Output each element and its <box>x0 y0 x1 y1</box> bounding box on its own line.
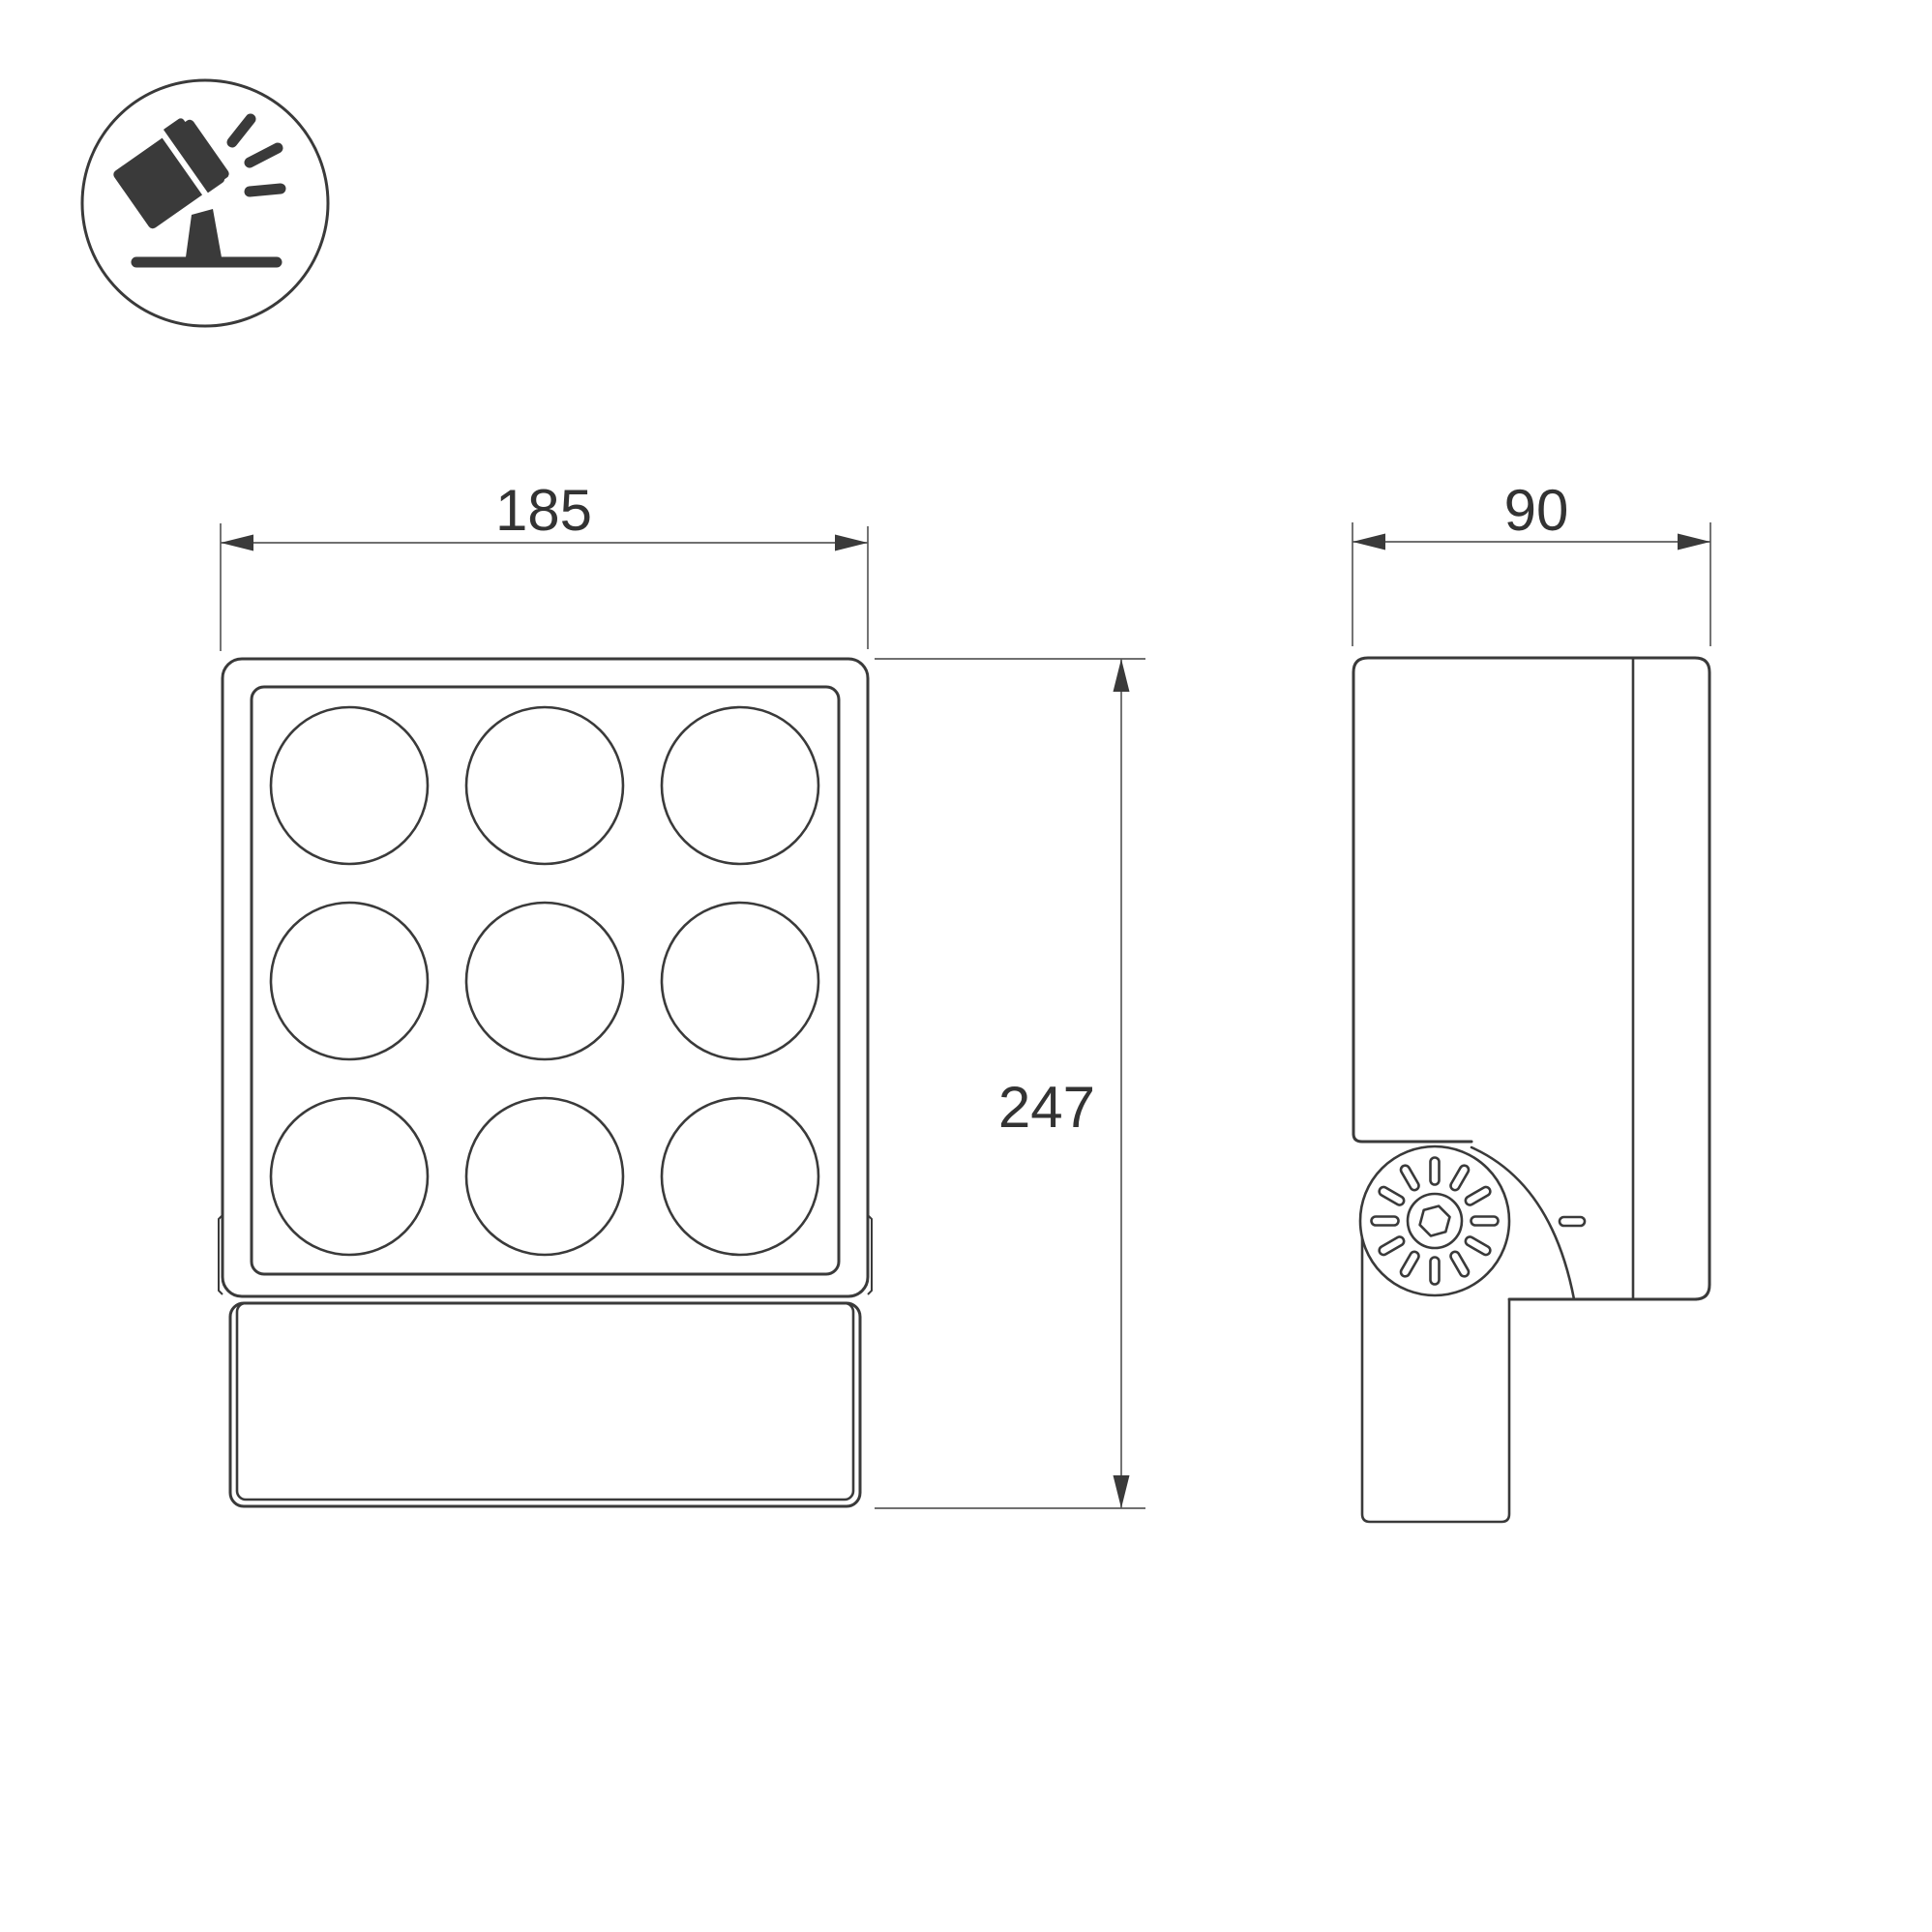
light-ray-2-icon <box>250 148 278 163</box>
lens-circle <box>271 903 428 1059</box>
front-view <box>219 659 872 1506</box>
arrow-right-icon <box>835 535 868 551</box>
arrow-left-icon <box>221 535 253 551</box>
lens-circle <box>662 903 818 1059</box>
floodlight-dimension-drawing: 185 247 <box>0 0 1932 1932</box>
lens-circle <box>662 707 818 864</box>
lens-circle <box>271 707 428 864</box>
lens-circle <box>662 1098 818 1255</box>
side-depth-dimension: 90 <box>1352 478 1710 646</box>
technical-drawing-page: 185 247 <box>0 0 1932 1932</box>
side-housing-bottom-left <box>1353 1134 1471 1142</box>
arrow-up-icon <box>1114 659 1130 692</box>
lens-circle <box>466 1098 623 1255</box>
side-slot-detail <box>1560 1217 1585 1226</box>
front-housing-outline <box>223 659 868 1296</box>
front-base-outer <box>230 1303 860 1506</box>
spotlight-post <box>186 209 222 257</box>
arrow-right-icon <box>1678 534 1710 550</box>
side-view <box>1353 658 1709 1522</box>
icon-circle-border <box>82 80 328 326</box>
arrow-down-icon <box>1114 1475 1130 1508</box>
spotlight-glyph-icon <box>111 117 281 262</box>
side-depth-label: 90 <box>1504 478 1569 543</box>
front-height-dimension: 247 <box>875 659 1145 1508</box>
light-ray-3-icon <box>250 189 281 192</box>
arrow-left-icon <box>1352 534 1385 550</box>
light-ray-1-icon <box>232 119 251 142</box>
knob-hub <box>1408 1194 1462 1248</box>
floodlight-icon <box>82 80 328 326</box>
lens-grid <box>271 707 818 1255</box>
front-width-dimension: 185 <box>221 478 868 651</box>
front-width-label: 185 <box>495 478 592 543</box>
front-height-label: 247 <box>998 1075 1095 1140</box>
bracket-knob <box>1360 1146 1509 1295</box>
front-lens-panel <box>252 687 839 1274</box>
lens-circle <box>466 903 623 1059</box>
front-base-inner <box>237 1303 853 1500</box>
lens-circle <box>271 1098 428 1255</box>
lens-circle <box>466 707 623 864</box>
